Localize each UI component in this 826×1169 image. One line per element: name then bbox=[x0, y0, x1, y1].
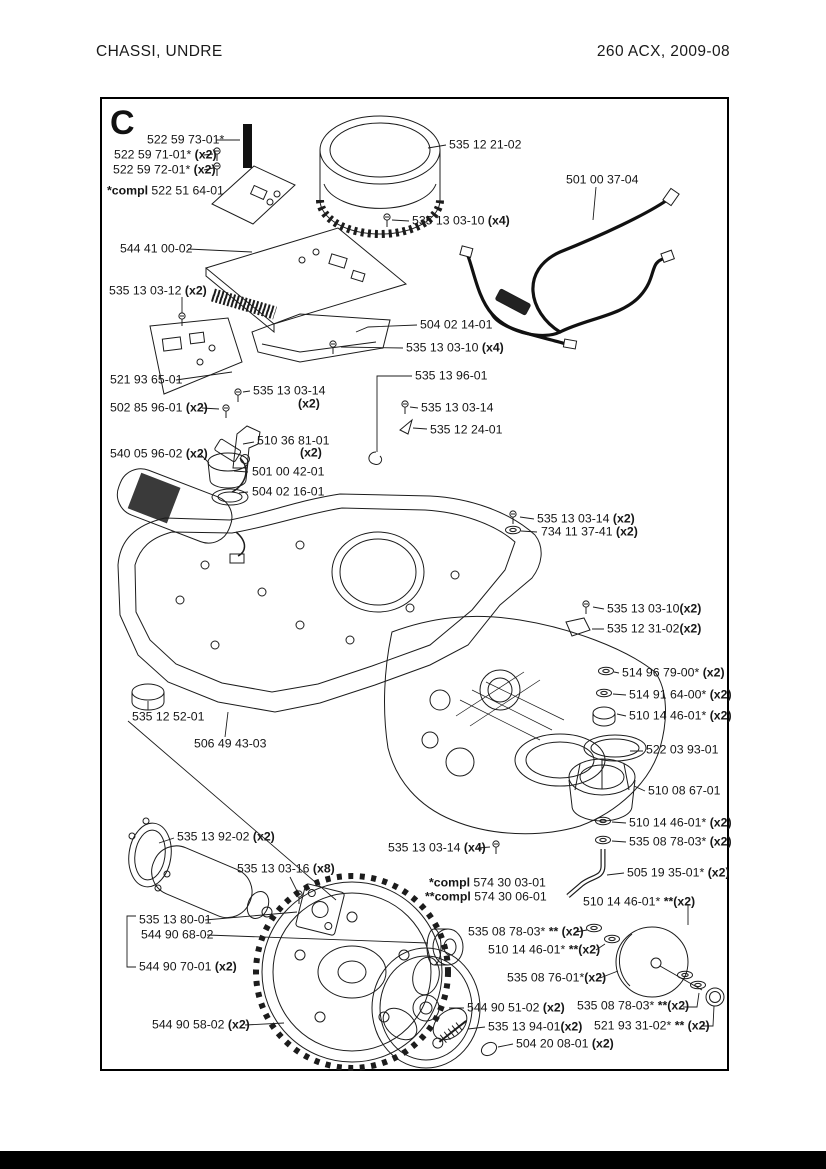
part-label: *compl 574 30 03-01 bbox=[429, 877, 546, 890]
label-qty: (x2) bbox=[228, 1018, 250, 1032]
part-label: 510 14 46-01* (x2) bbox=[629, 710, 732, 723]
label-qty: (x4) bbox=[464, 841, 486, 855]
part-label: 535 13 03-14 bbox=[253, 385, 325, 398]
label-number: 535 13 96-01 bbox=[415, 369, 487, 383]
label-number: 535 13 03-14 bbox=[537, 512, 613, 526]
part-label: 535 08 76-01*(x2) bbox=[507, 972, 606, 985]
part-label: 522 03 93-01 bbox=[646, 744, 718, 757]
label-number: 544 90 70-01 bbox=[139, 960, 215, 974]
label-number: 521 93 65-01 bbox=[110, 373, 182, 387]
label-qty: (x2) bbox=[253, 830, 275, 844]
part-label: 535 08 78-03* ** (x2) bbox=[468, 926, 584, 939]
page-title: CHASSI, UNDRE bbox=[96, 43, 223, 61]
label-qty: ** (x2) bbox=[675, 1019, 710, 1033]
label-number: 504 02 16-01 bbox=[252, 485, 324, 499]
label-number: 535 08 76-01* bbox=[507, 971, 584, 985]
label-number: 535 13 03-14 bbox=[388, 841, 464, 855]
label-number: 504 02 14-01 bbox=[420, 318, 492, 332]
part-label: 505 19 35-01* (x2) bbox=[627, 867, 730, 880]
label-qty: (x2) bbox=[679, 602, 701, 616]
label-number: 502 85 96-01 bbox=[110, 401, 186, 415]
label-number: 544 90 68-02 bbox=[141, 928, 213, 942]
part-label: 514 91 64-00* (x2) bbox=[629, 689, 732, 702]
label-qty: (x4) bbox=[478, 341, 503, 355]
label-number: 510 14 46-01* bbox=[583, 895, 664, 909]
label-number: 522 51 64-01 bbox=[151, 184, 223, 198]
label-number: 521 93 31-02* bbox=[594, 1019, 675, 1033]
section-letter: C bbox=[110, 106, 135, 140]
label-number: 506 49 43-03 bbox=[194, 737, 266, 751]
part-label: 535 12 24-01 bbox=[430, 424, 502, 437]
label-qty: (x2) bbox=[190, 163, 215, 177]
part-label: 535 13 03-10 (x4) bbox=[406, 342, 504, 355]
label-number: 535 12 52-01 bbox=[132, 710, 204, 724]
label-number: 535 13 03-16 bbox=[237, 862, 313, 876]
part-label: 535 08 78-03* (x2) bbox=[629, 836, 732, 849]
label-qty: (x2) bbox=[543, 1001, 565, 1015]
label-qty: (x2) bbox=[215, 960, 237, 974]
label-number: 574 30 03-01 bbox=[473, 876, 545, 890]
label-qty: (x2) bbox=[710, 688, 732, 702]
part-label: 544 41 00-02 bbox=[120, 243, 192, 256]
part-label: 522 59 72-01* (x2) bbox=[113, 164, 216, 177]
label-number: 535 13 80-01 bbox=[139, 913, 211, 927]
label-qty: (x2) bbox=[186, 447, 208, 461]
part-label: 535 08 78-03* **(x2) bbox=[577, 1000, 689, 1013]
label-qty: **(x2) bbox=[658, 999, 689, 1013]
part-label: 535 13 03-14 (x2) bbox=[537, 513, 635, 526]
label-number: 501 00 42-01 bbox=[252, 465, 324, 479]
part-label: 535 13 03-14 bbox=[421, 402, 493, 415]
part-label: **compl 574 30 06-01 bbox=[425, 891, 547, 904]
part-label: 502 85 96-01 (x2) bbox=[110, 402, 208, 415]
label-number: 510 14 46-01* bbox=[488, 943, 569, 957]
label-number: 535 08 78-03* bbox=[577, 999, 658, 1013]
part-label: 510 14 46-01* **(x2) bbox=[583, 896, 695, 909]
label-qty: (x8) bbox=[313, 862, 335, 876]
part-label: (x2) bbox=[298, 398, 320, 411]
part-label: 535 13 03-16 (x8) bbox=[237, 863, 335, 876]
label-qty: (x2) bbox=[191, 148, 216, 162]
label-qty: **(x2) bbox=[569, 943, 600, 957]
label-number: 734 11 37-41 bbox=[541, 525, 616, 539]
label-qty: (x2) bbox=[186, 401, 208, 415]
part-label: 544 90 70-01 (x2) bbox=[139, 961, 237, 974]
part-label: 535 13 03-14 (x4) bbox=[388, 842, 486, 855]
part-label: 535 12 21-02 bbox=[449, 139, 521, 152]
label-prefix: *compl bbox=[429, 876, 473, 890]
label-number: 501 00 37-04 bbox=[566, 173, 638, 187]
part-label: (x2) bbox=[300, 447, 322, 460]
part-label: 514 96 79-00* (x2) bbox=[622, 667, 725, 680]
label-prefix: *compl bbox=[107, 184, 151, 198]
label-number: 504 20 08-01 bbox=[516, 1037, 592, 1051]
label-prefix: **compl bbox=[425, 890, 474, 904]
part-label: 522 59 73-01* bbox=[147, 134, 224, 147]
part-label: 544 90 51-02 (x2) bbox=[467, 1002, 565, 1015]
label-qty: (x2) bbox=[708, 866, 730, 880]
part-label: 521 93 65-01 bbox=[110, 374, 182, 387]
label-number: 535 12 24-01 bbox=[430, 423, 502, 437]
part-label: 535 13 94-01(x2) bbox=[488, 1021, 582, 1034]
part-label: 501 00 42-01 bbox=[252, 466, 324, 479]
label-qty: (x2) bbox=[185, 284, 207, 298]
part-label: 504 02 14-01 bbox=[420, 319, 492, 332]
label-qty: (x2) bbox=[298, 397, 320, 411]
part-label: 510 14 46-01* **(x2) bbox=[488, 944, 600, 957]
part-label: 535 13 03-10(x2) bbox=[607, 603, 701, 616]
label-number: 522 59 72-01* bbox=[113, 163, 190, 177]
part-label: 535 13 03-10 (x4) bbox=[412, 215, 510, 228]
label-number: 544 90 51-02 bbox=[467, 1001, 543, 1015]
label-number: 510 08 67-01 bbox=[648, 784, 720, 798]
label-number: 535 08 78-03* bbox=[468, 925, 549, 939]
label-number: 535 13 92-02 bbox=[177, 830, 253, 844]
part-label: *compl 522 51 64-01 bbox=[107, 185, 224, 198]
part-label: 535 13 80-01 bbox=[139, 914, 211, 927]
label-number: 522 59 73-01* bbox=[147, 133, 224, 147]
label-number: 535 13 03-14 bbox=[421, 401, 493, 415]
part-label: 544 90 58-02 (x2) bbox=[152, 1019, 250, 1032]
part-label: 504 02 16-01 bbox=[252, 486, 324, 499]
label-number: 510 14 46-01* bbox=[629, 709, 710, 723]
label-number: 535 13 03-12 bbox=[109, 284, 185, 298]
label-number: 514 96 79-00* bbox=[622, 666, 703, 680]
label-qty: (x2) bbox=[613, 512, 635, 526]
label-qty: (x2) bbox=[584, 971, 606, 985]
label-number: 540 05 96-02 bbox=[110, 447, 186, 461]
label-qty: (x2) bbox=[616, 525, 638, 539]
label-qty: (x2) bbox=[679, 622, 701, 636]
part-label: 535 12 31-02(x2) bbox=[607, 623, 701, 636]
label-number: 544 41 00-02 bbox=[120, 242, 192, 256]
part-label: 504 20 08-01 (x2) bbox=[516, 1038, 614, 1051]
part-label: 501 00 37-04 bbox=[566, 174, 638, 187]
label-qty: (x2) bbox=[710, 816, 732, 830]
part-label: 521 93 31-02* ** (x2) bbox=[594, 1020, 710, 1033]
label-number: 522 03 93-01 bbox=[646, 743, 718, 757]
label-qty: (x2) bbox=[703, 666, 725, 680]
label-number: 505 19 35-01* bbox=[627, 866, 708, 880]
footer-bar bbox=[0, 1151, 826, 1169]
label-qty: (x2) bbox=[592, 1037, 614, 1051]
label-number: 544 90 58-02 bbox=[152, 1018, 228, 1032]
label-number: 535 13 03-14 bbox=[253, 384, 325, 398]
part-label: 535 13 96-01 bbox=[415, 370, 487, 383]
label-number: 535 13 03-10 bbox=[406, 341, 478, 355]
model-revision: 260 ACX, 2009-08 bbox=[597, 43, 730, 61]
part-label: 510 14 46-01* (x2) bbox=[629, 817, 732, 830]
part-label: 510 08 67-01 bbox=[648, 785, 720, 798]
part-label: 535 13 92-02 (x2) bbox=[177, 831, 275, 844]
label-number: 535 13 94-01 bbox=[488, 1020, 560, 1034]
part-label: 535 13 03-12 (x2) bbox=[109, 285, 207, 298]
label-qty: (x2) bbox=[710, 835, 732, 849]
part-label: 535 12 52-01 bbox=[132, 711, 204, 724]
part-label: 506 49 43-03 bbox=[194, 738, 266, 751]
label-number: 510 14 46-01* bbox=[629, 816, 710, 830]
label-number: 535 13 03-10 bbox=[607, 602, 679, 616]
label-number: 574 30 06-01 bbox=[474, 890, 546, 904]
label-number: 535 13 03-10 bbox=[412, 214, 488, 228]
label-number: 514 91 64-00* bbox=[629, 688, 710, 702]
label-qty: ** (x2) bbox=[549, 925, 584, 939]
label-number: 535 08 78-03* bbox=[629, 835, 710, 849]
label-qty: (x2) bbox=[560, 1020, 582, 1034]
label-number: 535 12 21-02 bbox=[449, 138, 521, 152]
label-qty: (x2) bbox=[300, 446, 322, 460]
label-qty: (x4) bbox=[488, 214, 510, 228]
label-qty: (x2) bbox=[710, 709, 732, 723]
label-qty: **(x2) bbox=[664, 895, 695, 909]
part-label: 544 90 68-02 bbox=[141, 929, 213, 942]
label-number: 535 12 31-02 bbox=[607, 622, 679, 636]
part-label: 522 59 71-01* (x2) bbox=[114, 149, 217, 162]
part-label: 734 11 37-41 (x2) bbox=[541, 526, 638, 539]
part-label: 540 05 96-02 (x2) bbox=[110, 448, 208, 461]
label-number: 522 59 71-01* bbox=[114, 148, 191, 162]
